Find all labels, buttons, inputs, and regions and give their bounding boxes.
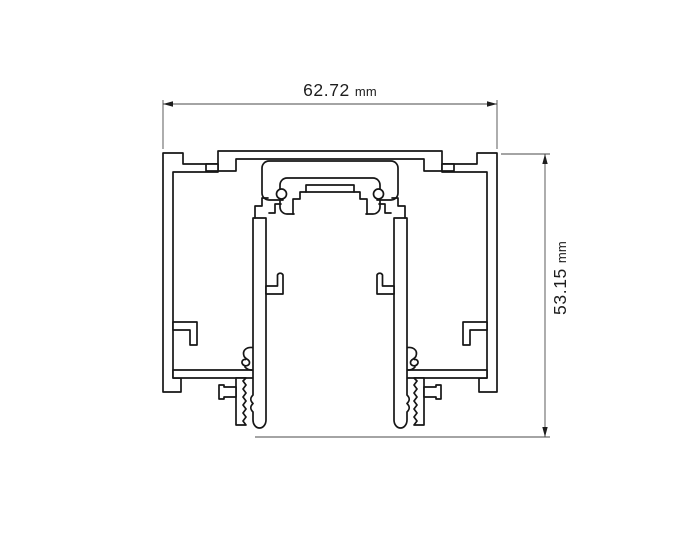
profile-right-half (377, 153, 497, 428)
top-plate-toe-left (206, 164, 218, 171)
mid-hook (266, 273, 283, 294)
shoulder-steps (255, 198, 268, 218)
profile-cross-section (163, 151, 497, 428)
inner-hook (173, 322, 197, 345)
dimension-width: 62.72mm (163, 80, 497, 149)
teardrop-hook-right (374, 189, 384, 199)
teardrop-hook-left (277, 189, 287, 199)
height-dimension-label: 53.15mm (550, 241, 570, 315)
slot-hat (293, 185, 367, 214)
top-plate-toe-right (442, 164, 454, 171)
track-slot (280, 178, 380, 214)
arrowhead-left (163, 101, 173, 106)
side-wall (163, 153, 218, 392)
chamber-bottom-plate (173, 370, 255, 378)
profile-left-half (163, 153, 283, 428)
channel-wall (251, 218, 266, 428)
width-dimension-label: 62.72mm (303, 80, 377, 100)
arrowhead-top (542, 154, 547, 164)
leg-tab (219, 385, 236, 399)
arrowhead-right (487, 101, 497, 106)
serrated-leg (236, 378, 246, 425)
drawing-canvas: 62.72mm 53.15mm (0, 0, 700, 544)
dimension-height: 53.15mm (255, 154, 570, 437)
arrowhead-bottom (542, 427, 547, 437)
technical-drawing: 62.72mm 53.15mm (0, 0, 700, 544)
